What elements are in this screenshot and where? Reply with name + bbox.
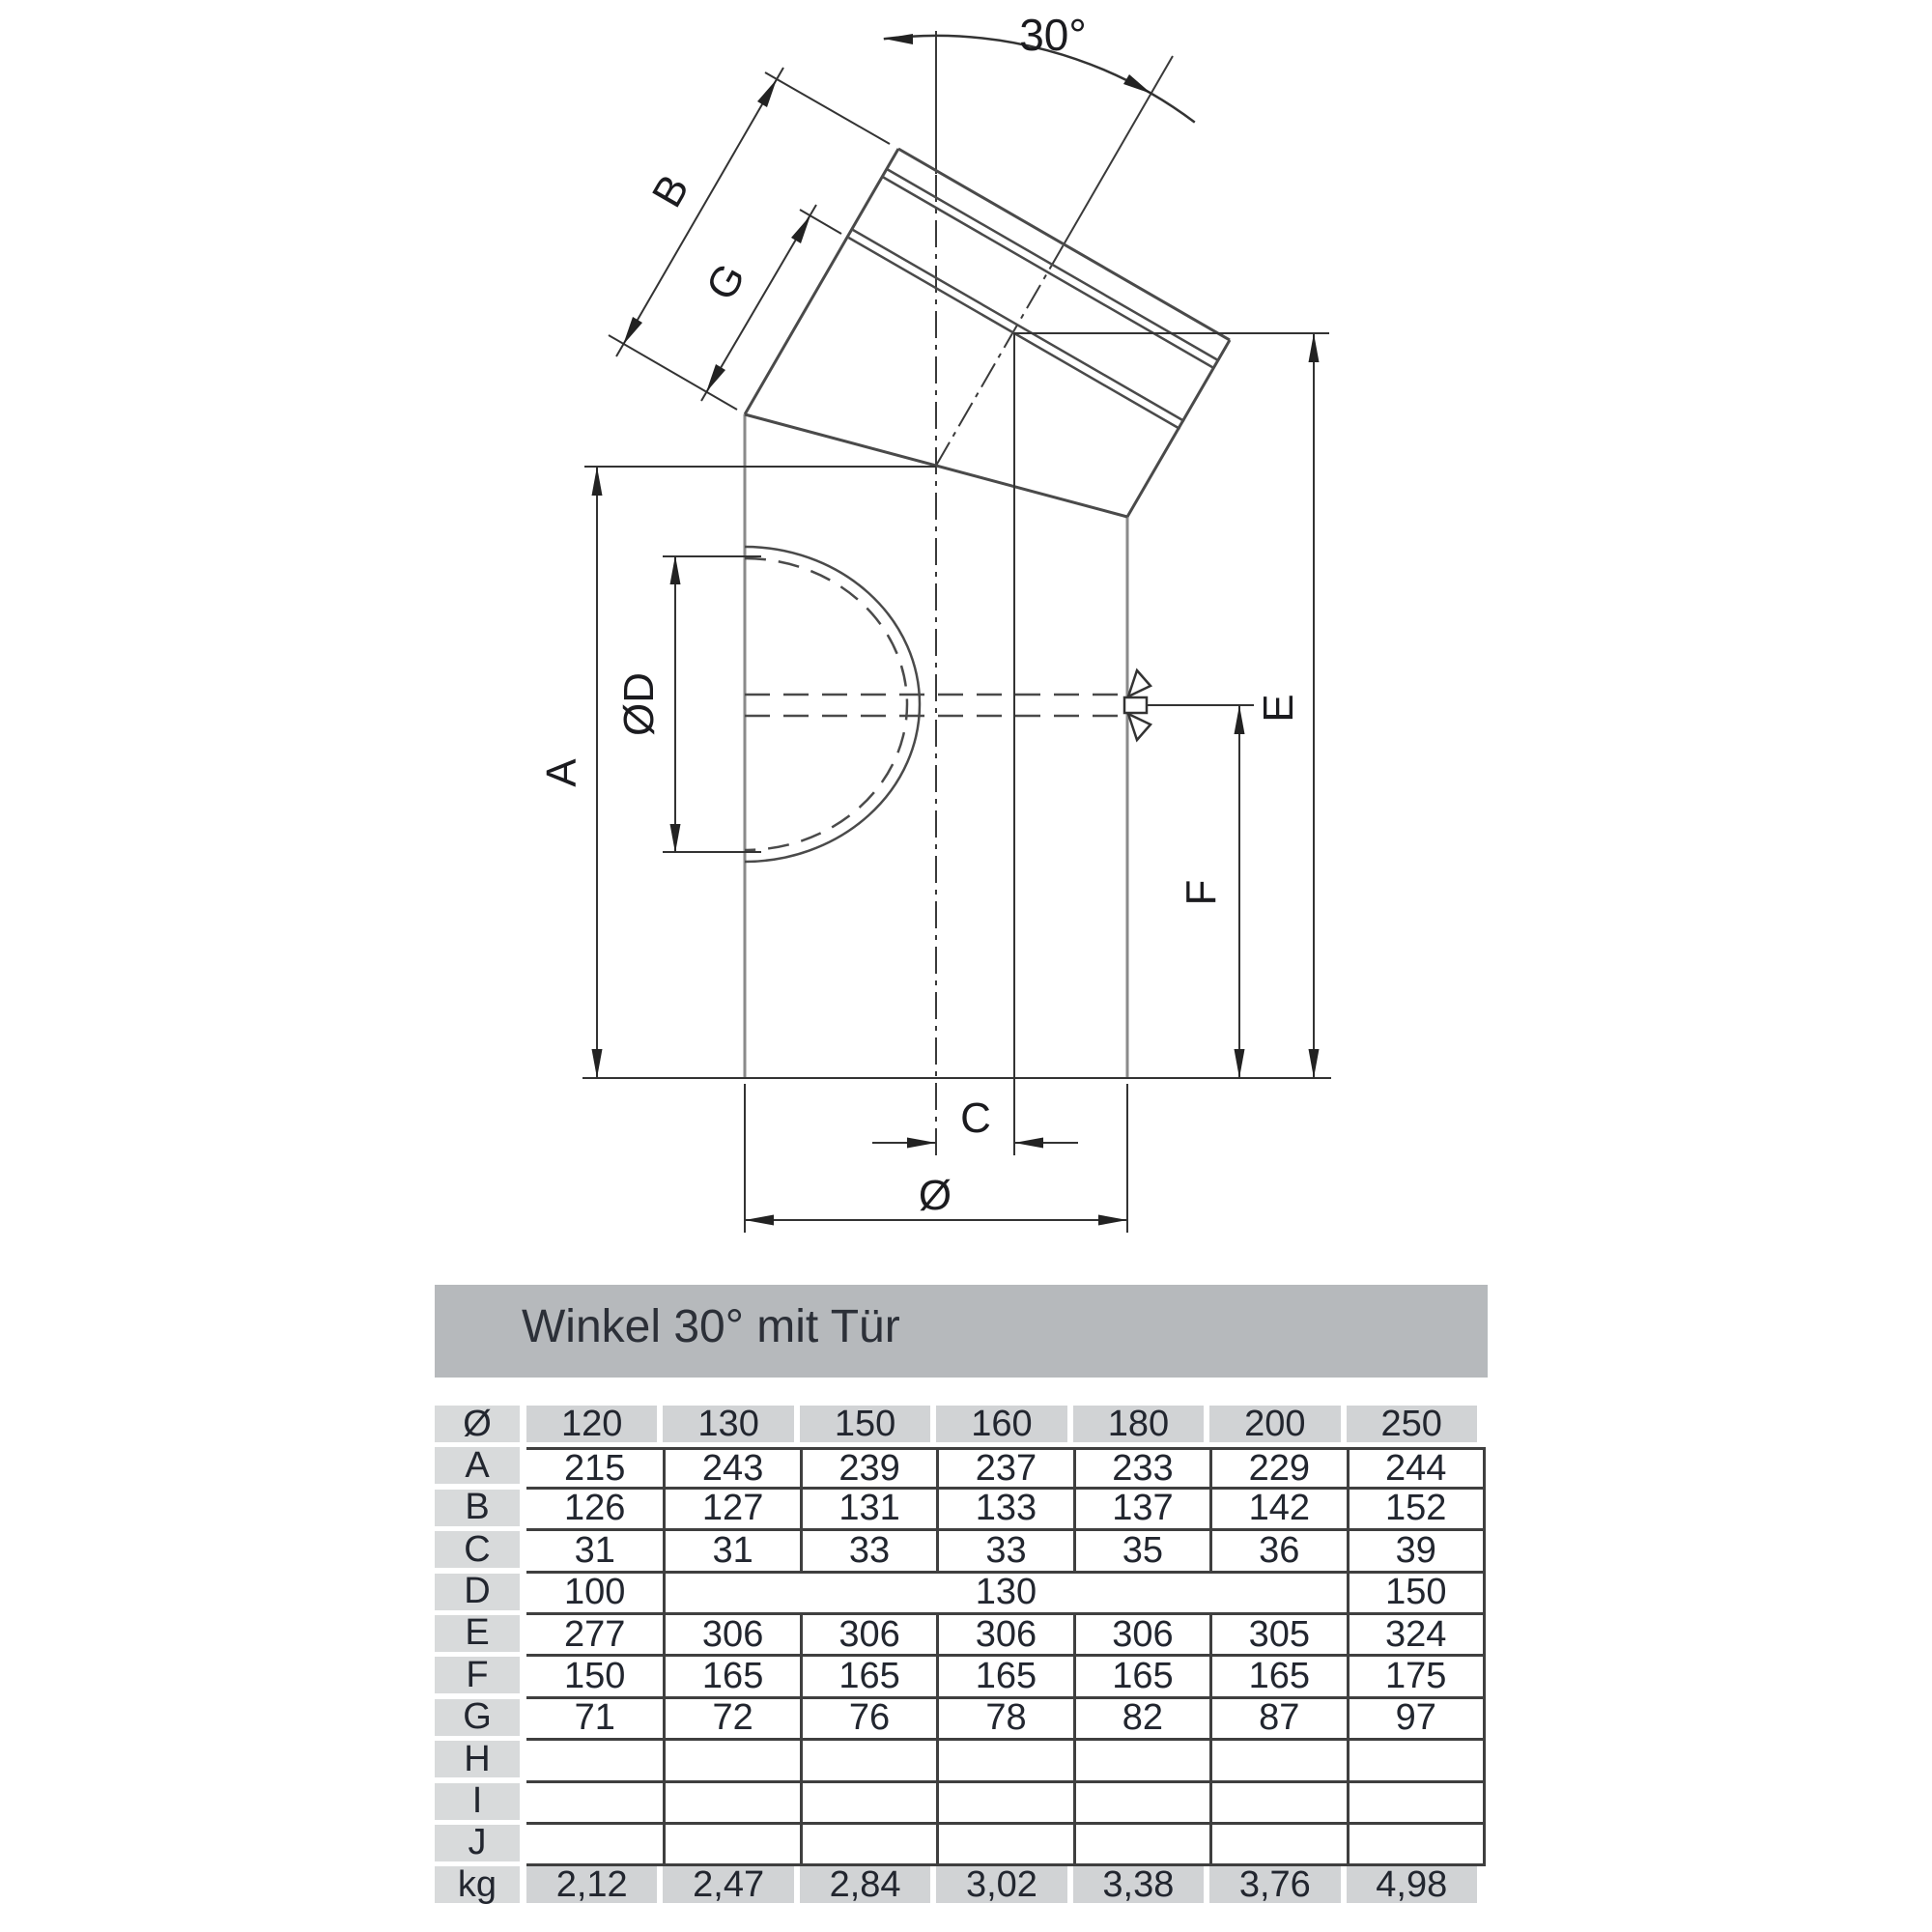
table-cell: 233 xyxy=(1073,1450,1209,1486)
table-cell xyxy=(663,1783,799,1822)
table-cell: 306 xyxy=(1073,1615,1209,1654)
elbow-technical-drawing: 30° B G A ØD E F C Ø xyxy=(0,0,1932,1265)
row-label-G: G xyxy=(435,1699,520,1736)
table-cell: 120 xyxy=(526,1406,657,1442)
table-row: B126127131133137142152 xyxy=(435,1490,1488,1531)
table-cell: 133 xyxy=(936,1490,1072,1528)
table-row: E277306306306306305324 xyxy=(435,1615,1488,1657)
row-label-C: C xyxy=(435,1531,520,1568)
table-cell: 306 xyxy=(663,1615,799,1654)
table-cell: 130 xyxy=(663,1574,1346,1612)
table-cell: 244 xyxy=(1347,1450,1483,1486)
row-label-I: I xyxy=(435,1783,520,1820)
table-cell: 87 xyxy=(1209,1699,1346,1738)
table-cell xyxy=(936,1741,1072,1779)
table-title-bar: Winkel 30° mit Tür xyxy=(435,1285,1488,1378)
table-cell: 2,84 xyxy=(800,1866,930,1903)
table-row: G71727678828797 xyxy=(435,1699,1488,1741)
table-cell: 150 xyxy=(1347,1574,1483,1612)
table-cell xyxy=(663,1741,799,1779)
table-cell: 39 xyxy=(1347,1531,1483,1570)
row-label-E: E xyxy=(435,1615,520,1652)
table-cell: 31 xyxy=(663,1531,799,1570)
table-cell xyxy=(526,1825,663,1863)
table-cell: 250 xyxy=(1347,1406,1477,1442)
table-cell: 137 xyxy=(1073,1490,1209,1528)
table-cell: 142 xyxy=(1209,1490,1346,1528)
table-cell: 200 xyxy=(1209,1406,1340,1442)
table-cell: 36 xyxy=(1209,1531,1346,1570)
table-cell xyxy=(1073,1825,1209,1863)
table-cell: 150 xyxy=(800,1406,930,1442)
table-row: H xyxy=(435,1741,1488,1782)
table-cell: 160 xyxy=(936,1406,1066,1442)
dim-label-a: A xyxy=(538,758,585,787)
table-cell xyxy=(1347,1825,1483,1863)
table-cell: 2,47 xyxy=(663,1866,793,1903)
dim-label-diameter: Ø xyxy=(919,1172,952,1219)
table-cell: 165 xyxy=(1209,1657,1346,1695)
table-cell xyxy=(1209,1741,1346,1779)
table-cell: 33 xyxy=(800,1531,936,1570)
table-cell: 71 xyxy=(526,1699,663,1738)
table-cell xyxy=(1347,1741,1483,1779)
table-cell: 100 xyxy=(526,1574,663,1612)
table-row: I xyxy=(435,1783,1488,1825)
pipe-outline xyxy=(745,149,1230,1078)
spec-table: Ø120130150160180200250A21524323923723322… xyxy=(435,1406,1488,1909)
table-cell: 3,76 xyxy=(1209,1866,1340,1903)
page: 30° B G A ØD E F C Ø Winkel 30° mit Tür … xyxy=(0,0,1932,1932)
table-cell: 33 xyxy=(936,1531,1072,1570)
dim-label-e: E xyxy=(1255,694,1302,722)
dimension-labels: 30° B G A ØD E F C Ø xyxy=(538,10,1302,1219)
dimension-arrows xyxy=(592,34,1320,1226)
table-cell xyxy=(526,1741,663,1779)
dim-label-door-diameter: ØD xyxy=(615,672,663,736)
table-cell: 4,98 xyxy=(1347,1866,1477,1903)
table-row: F150165165165165165175 xyxy=(435,1657,1488,1698)
row-label-A: A xyxy=(435,1447,520,1484)
row-label-Ø: Ø xyxy=(435,1406,520,1442)
table-cell: 76 xyxy=(800,1699,936,1738)
table-cell: 82 xyxy=(1073,1699,1209,1738)
table-cell: 130 xyxy=(663,1406,793,1442)
dim-label-g: G xyxy=(697,256,755,308)
table-cell: 165 xyxy=(936,1657,1072,1695)
table-cell: 180 xyxy=(1073,1406,1204,1442)
centerlines xyxy=(936,31,1173,1155)
table-cell: 215 xyxy=(526,1450,663,1486)
table-cell: 150 xyxy=(526,1657,663,1695)
table-cell: 239 xyxy=(800,1450,936,1486)
table-cell: 165 xyxy=(1073,1657,1209,1695)
table-cell: 97 xyxy=(1347,1699,1483,1738)
table-cell xyxy=(526,1783,663,1822)
table-cell: 165 xyxy=(663,1657,799,1695)
table-cell xyxy=(800,1741,936,1779)
table-cell: 126 xyxy=(526,1490,663,1528)
table-cell xyxy=(1209,1825,1346,1863)
table-cell xyxy=(1347,1783,1483,1822)
table-cell: 237 xyxy=(936,1450,1072,1486)
table-cell: 127 xyxy=(663,1490,799,1528)
dim-label-c: C xyxy=(960,1094,991,1142)
table-cell: 324 xyxy=(1347,1615,1483,1654)
dimension-lines xyxy=(582,36,1331,1233)
table-cell xyxy=(936,1783,1072,1822)
table-cell: 131 xyxy=(800,1490,936,1528)
table-cell: 229 xyxy=(1209,1450,1346,1486)
cleanout-door xyxy=(745,547,1119,862)
table-cell: 31 xyxy=(526,1531,663,1570)
table-cell xyxy=(1073,1783,1209,1822)
table-cell: 165 xyxy=(800,1657,936,1695)
table-cell: 35 xyxy=(1073,1531,1209,1570)
table-cell xyxy=(800,1783,936,1822)
table-cell: 2,12 xyxy=(526,1866,657,1903)
row-label-F: F xyxy=(435,1657,520,1693)
table-cell xyxy=(663,1825,799,1863)
table-cell xyxy=(1073,1741,1209,1779)
table-cell: 72 xyxy=(663,1699,799,1738)
row-label-B: B xyxy=(435,1490,520,1526)
row-label-D: D xyxy=(435,1574,520,1610)
table-row: Ø120130150160180200250 xyxy=(435,1406,1488,1447)
table-cell: 306 xyxy=(936,1615,1072,1654)
angle-label: 30° xyxy=(1019,10,1087,60)
table-cell: 78 xyxy=(936,1699,1072,1738)
row-label-H: H xyxy=(435,1741,520,1777)
row-label-kg: kg xyxy=(435,1866,520,1903)
table-row: kg2,122,472,843,023,383,764,98 xyxy=(435,1866,1488,1908)
table-cell xyxy=(800,1825,936,1863)
table-row: A215243239237233229244 xyxy=(435,1447,1488,1489)
table-cell: 277 xyxy=(526,1615,663,1654)
table-title: Winkel 30° mit Tür xyxy=(435,1285,1488,1353)
table-cell xyxy=(936,1825,1072,1863)
dim-label-b: B xyxy=(643,167,698,215)
row-label-J: J xyxy=(435,1825,520,1861)
table-cell: 152 xyxy=(1347,1490,1483,1528)
table-cell: 306 xyxy=(800,1615,936,1654)
table-row: D100130150 xyxy=(435,1574,1488,1615)
table-cell: 243 xyxy=(663,1450,799,1486)
table-row: J xyxy=(435,1825,1488,1866)
table-cell: 3,38 xyxy=(1073,1866,1204,1903)
table-cell: 3,02 xyxy=(936,1866,1066,1903)
dim-label-f: F xyxy=(1178,880,1225,906)
table-row: C31313333353639 xyxy=(435,1531,1488,1573)
table-cell: 175 xyxy=(1347,1657,1483,1695)
table-cell: 305 xyxy=(1209,1615,1346,1654)
table-cell xyxy=(1209,1783,1346,1822)
